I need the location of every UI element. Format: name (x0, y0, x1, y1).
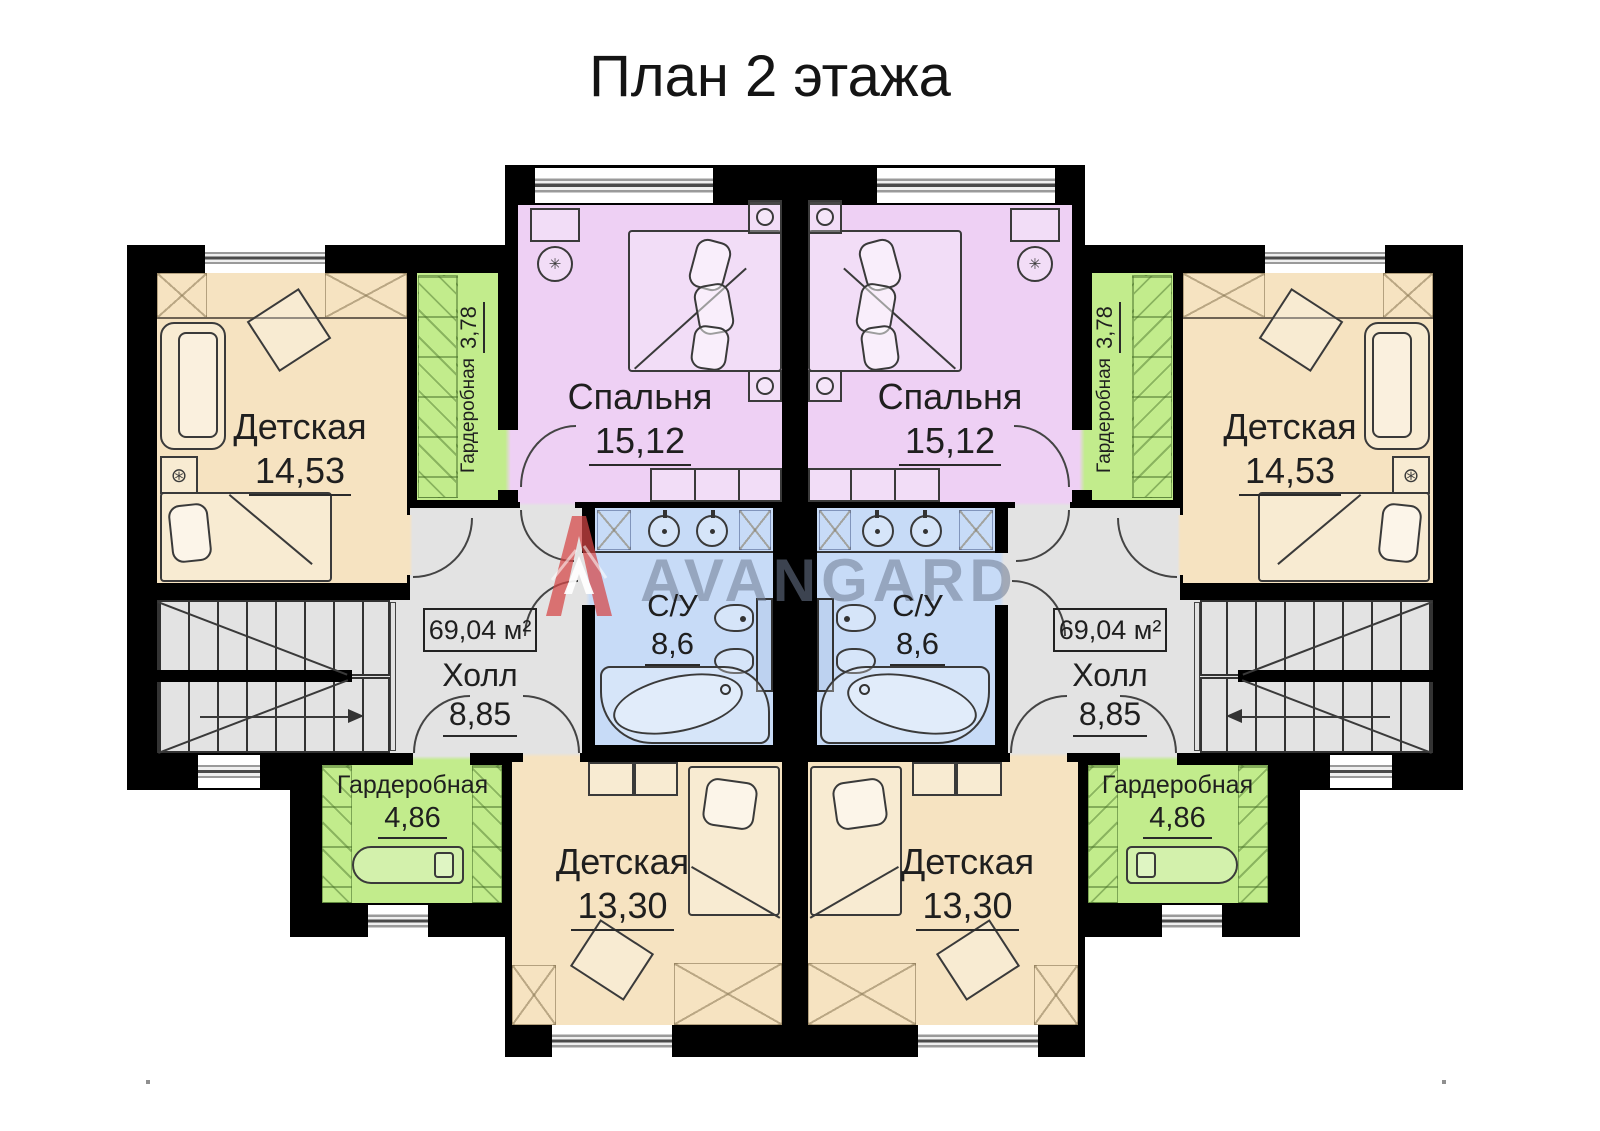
room-area: 8,85 (443, 695, 517, 737)
total-area-value: 69,04 м² (429, 615, 532, 646)
room-label-bathroom-left: С/У 8,6 (600, 587, 745, 666)
room-name: Спальня (878, 376, 1023, 417)
stairs-divider-wall (1238, 670, 1433, 682)
room-name: Холл (442, 657, 517, 693)
room-name: Детская (233, 406, 366, 447)
bed-single (1258, 492, 1430, 582)
room-area: 15,12 (589, 419, 691, 466)
pillow (831, 777, 889, 832)
room-area: 13,30 (571, 884, 673, 931)
iron (1136, 852, 1156, 878)
stairs-arrow-head (1226, 709, 1242, 723)
room-area: 15,12 (899, 419, 1001, 466)
total-area-box-right: 69,04 м² (1053, 608, 1167, 652)
room-label-wardrobe-bottom-right: Гардеробная 4,86 (1095, 770, 1260, 839)
room-area: 13,30 (916, 884, 1018, 931)
room-label-hall-left: Холл 8,85 (410, 656, 550, 737)
counter-end (819, 510, 851, 550)
room-area: 4,86 (1143, 801, 1211, 839)
room-name: Детская (556, 841, 689, 882)
room-label-nursery-top-left: Детская 14,53 (190, 405, 410, 496)
nightstand (808, 200, 842, 234)
stairs-handrail (1194, 602, 1200, 751)
wardrobe-shelving (1132, 275, 1172, 498)
sink-drain (875, 529, 880, 534)
reference-dot-left (146, 1080, 150, 1084)
room-area: 4,86 (378, 801, 446, 839)
room-name: Гардеробная (1094, 358, 1115, 473)
rug-area (1034, 965, 1078, 1025)
cabinet (912, 762, 956, 796)
room-label-bathroom-right: С/У 8,6 (845, 587, 990, 666)
ironing-board (1126, 846, 1238, 884)
room-area: 8,6 (645, 625, 700, 666)
total-area-value: 69,04 м² (1059, 615, 1162, 646)
total-area-box-left: 69,04 м² (423, 608, 537, 652)
sink-tap (875, 510, 879, 518)
window-nursery-top (1265, 243, 1385, 273)
room-area: 3,78 (1092, 302, 1121, 353)
bathtub-drain (859, 684, 870, 695)
room-name: Холл (1072, 657, 1147, 693)
room-area: 8,6 (890, 625, 945, 666)
room-label-wardrobe-top-right: Гардеробная 3,78 (1092, 277, 1134, 498)
pillow (1377, 502, 1423, 564)
closet-area (1383, 273, 1433, 318)
lamp (816, 208, 834, 226)
closet-area (1183, 273, 1265, 318)
sink-drain (923, 529, 928, 534)
desk (1010, 208, 1060, 242)
room-name: С/У (892, 588, 943, 623)
counter-end (959, 510, 993, 550)
sink (862, 515, 894, 547)
blanket-line (1277, 494, 1361, 565)
room-name: Гардеробная (1102, 771, 1253, 799)
bed-double (808, 230, 962, 372)
reference-dot-right (1442, 1080, 1446, 1084)
cabinet (956, 762, 1002, 796)
room-area: 8,85 (1073, 695, 1147, 737)
window-bedroom (877, 168, 1055, 203)
room-name: Детская (1223, 406, 1356, 447)
room-area: 14,53 (249, 449, 351, 496)
room-name: Спальня (568, 376, 713, 417)
stairs-direction-arrow (1240, 716, 1390, 718)
room-area: 3,78 (456, 302, 485, 353)
bathtub (820, 666, 990, 744)
room-area: 14,53 (1239, 449, 1341, 496)
window-stairs (1330, 755, 1392, 788)
room-label-wardrobe-bottom-left: Гардеробная 4,86 (330, 770, 495, 839)
room-label-nursery-bottom-left: Детская 13,30 (530, 840, 715, 931)
wardrobe-cabinets (808, 468, 940, 502)
bathtub-basin (842, 663, 983, 745)
lamp (816, 377, 834, 395)
room-label-bedroom-left: Спальня 15,12 (530, 375, 750, 466)
sink (910, 515, 942, 547)
window-nursery-bottom (918, 1025, 1038, 1057)
pillow (859, 324, 901, 373)
room-label-nursery-top-right: Детская 14,53 (1180, 405, 1400, 496)
room-label-hall-right: Холл 8,85 (1040, 656, 1180, 737)
stairs-upper-flight (1200, 600, 1433, 676)
floor-plan-canvas: План 2 этажа (0, 0, 1600, 1131)
room-name: Гардеробная (458, 358, 479, 473)
rug-area (808, 963, 916, 1025)
chair: ✳ (1017, 246, 1053, 282)
room-label-wardrobe-top-left: Гардеробная 3,78 (456, 277, 498, 498)
room-label-nursery-bottom-right: Детская 13,30 (875, 840, 1060, 931)
room-name: Детская (901, 841, 1034, 882)
window-wardrobe-bottom (1162, 905, 1222, 937)
room-label-bedroom-right: Спальня 15,12 (840, 375, 1060, 466)
sink-tap (923, 510, 927, 518)
room-name: Гардеробная (337, 771, 488, 799)
nightstand (808, 370, 842, 402)
room-name: С/У (647, 588, 698, 623)
